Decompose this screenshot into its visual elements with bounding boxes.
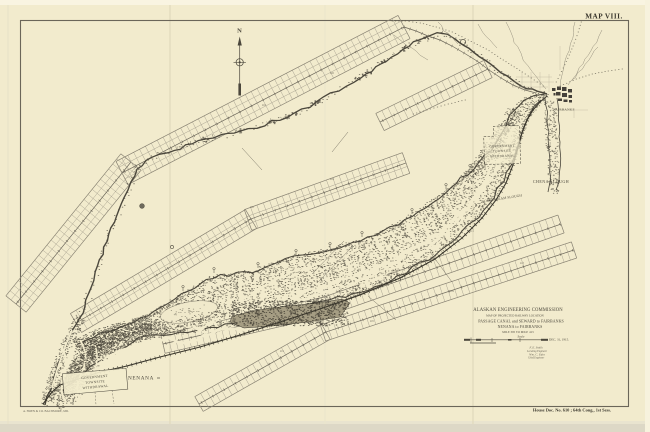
svg-text:TOWNSITE: TOWNSITE [493,149,512,154]
svg-text:NENANA: NENANA [128,376,154,382]
svg-text:MILE 395 TO MILE 413: MILE 395 TO MILE 413 [502,330,534,334]
svg-text:MAP OF PROJECTED RAILWAY LOCAT: MAP OF PROJECTED RAILWAY LOCATION [486,314,545,318]
svg-text:MAP VIII.: MAP VIII. [585,13,623,21]
svg-text:CHENA SLOUGH: CHENA SLOUGH [533,179,569,184]
svg-text:Scale: Scale [518,335,525,339]
svg-text:FAIRBANKS: FAIRBANKS [553,108,574,112]
svg-text:N: N [237,28,242,35]
svg-text:F. E. Smith: F. E. Smith [528,346,543,350]
svg-text:House Doc. No. 610 ; 64th Co: House Doc. No. 610 ; 64th Cong., 1st Ses… [533,408,611,413]
svg-text:PASSAGE CANAL and SEWARD to FA: PASSAGE CANAL and SEWARD to FAIRBANKS [478,319,564,324]
svg-text:ALASKAN ENGINEERING COMMISSION: ALASKAN ENGINEERING COMMISSION [473,308,563,313]
svg-text:NENANA to FAIRBANKS: NENANA to FAIRBANKS [498,325,543,329]
svg-text:Chief Engineer: Chief Engineer [528,357,545,360]
